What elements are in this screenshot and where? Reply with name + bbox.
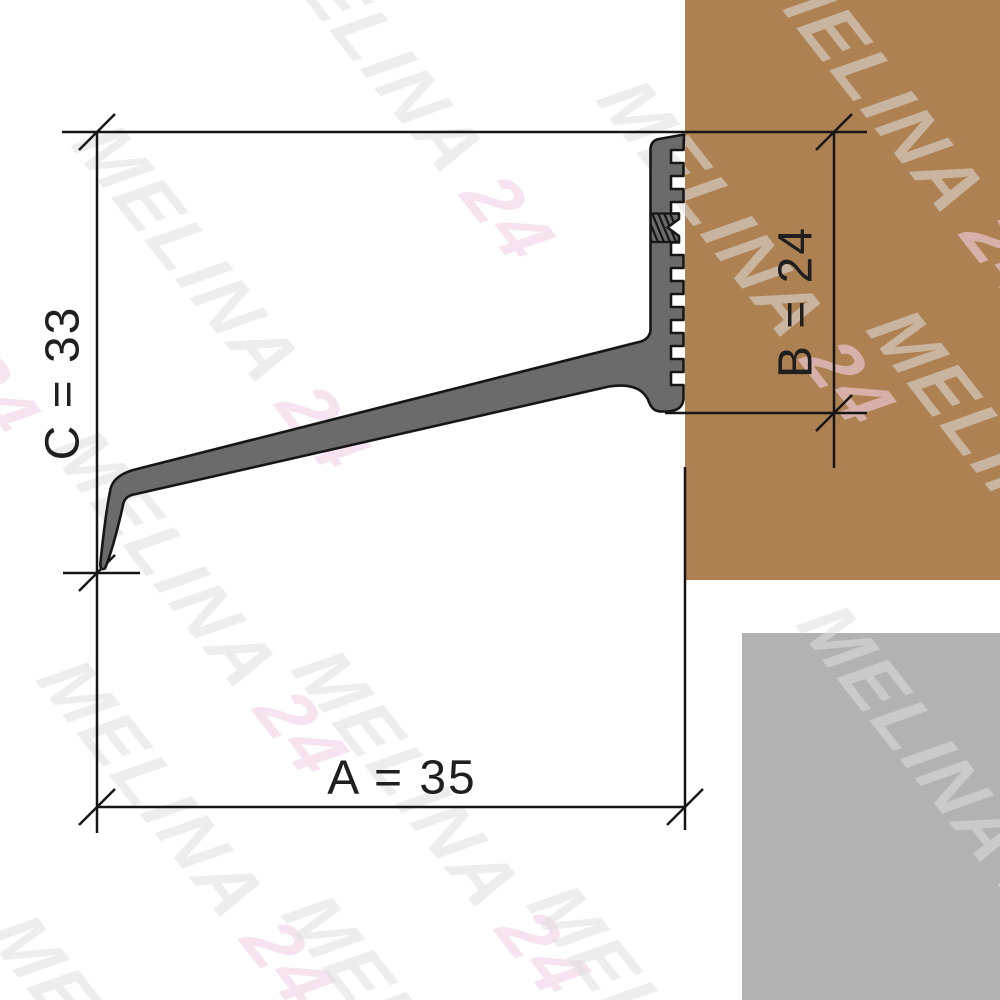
dimension-label-a: A = 35: [327, 751, 476, 806]
dimension-label-b: B = 24: [769, 226, 824, 378]
dimension-label-c: C = 33: [36, 306, 91, 461]
profile-outline: [100, 135, 684, 570]
profile-drawing: [0, 0, 1000, 1000]
profile-shape: [100, 135, 684, 570]
diagram-canvas: MELINA 24MELINA 24MELINA 24MELINA 24MELI…: [0, 0, 1000, 1000]
